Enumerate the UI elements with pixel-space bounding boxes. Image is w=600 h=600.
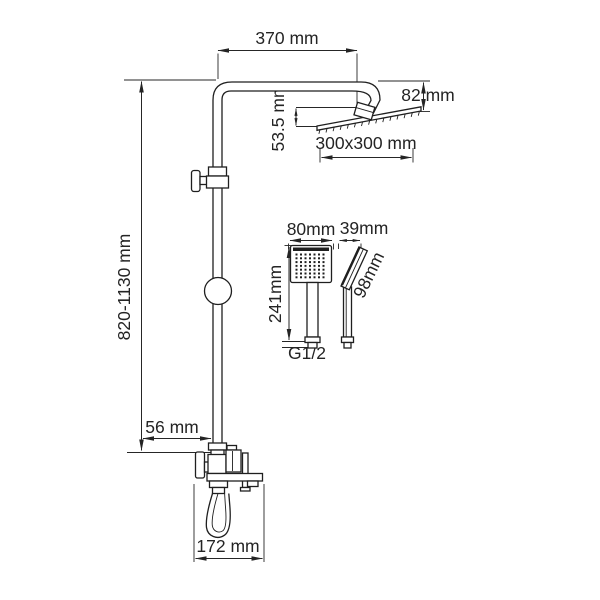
hand-shower-thread-front (308, 343, 317, 349)
dimension-head-offset-height: 82 mm (378, 81, 455, 112)
dim-label-wall-to-pipe-offset: 56 mm (145, 417, 198, 437)
dimension-wall-to-pipe-offset: 56 mm (143, 417, 211, 439)
hand-shower-handle-front (307, 283, 318, 338)
thread-label: G1/2 (288, 343, 326, 363)
holder-bracket-foot (241, 488, 251, 492)
diverter-collar (209, 167, 227, 176)
diverter-body (207, 176, 229, 188)
dimension-hand-shower-depth: 39mm (339, 218, 389, 249)
slider-holder (205, 278, 232, 305)
hose-loop-outer (206, 494, 230, 538)
riser-union-nut (209, 443, 227, 450)
technical-drawing-canvas: 820-1130 mm 370 mm 82 mm 53.5 mm 300x300… (0, 0, 600, 600)
hand-shower-front-view (291, 246, 332, 349)
dimension-column-height: 820-1130 mm (114, 80, 216, 453)
hand-shower-thread-side (344, 343, 351, 349)
hand-shower-head-band (293, 248, 329, 252)
dim-label-hand-shower-length: 241mm (265, 265, 285, 323)
shower-system-technical-drawing: 820-1130 mm 370 mm 82 mm 53.5 mm 300x300… (0, 0, 600, 600)
dim-label-head-offset-height: 82 mm (401, 85, 454, 105)
dimension-hand-shower-length: 241mm (265, 246, 292, 341)
mixer-handle (196, 452, 205, 478)
hand-shower-connector-side (342, 337, 354, 343)
hose-nut-lower (213, 488, 225, 494)
rain-shower-head (317, 102, 421, 133)
dim-label-head-assembly-height: 53.5 mm (268, 83, 288, 151)
mixer-diverter-cap (227, 446, 237, 451)
diverter-knob (192, 167, 229, 192)
dim-label-column-height: 820-1130 mm (114, 234, 134, 341)
mixer-assembly (196, 443, 263, 537)
dim-label-hand-shower-depth: 39mm (340, 218, 389, 238)
dim-label-arm-reach: 370 mm (255, 28, 318, 48)
mixer-body (208, 455, 226, 474)
hose-loop-inner (212, 494, 226, 533)
hand-shower-nozzle-grid (296, 254, 328, 280)
mixer-cartridge (226, 450, 241, 472)
slider-ring (205, 278, 232, 305)
mixer-spout (207, 474, 263, 482)
dimension-head-size: 300x300 mm (315, 133, 416, 163)
dim-label-head-size: 300x300 mm (315, 133, 416, 153)
hand-shower-connector-front (305, 337, 320, 343)
label-connection-thread: G1/2 (282, 342, 326, 364)
hand-shower-handle-side (344, 287, 352, 337)
dim-label-hand-shower-width: 80mm (287, 219, 336, 239)
spout-outlet (248, 481, 259, 487)
diverter-handle (192, 171, 201, 192)
dim-label-spout-projection: 172 mm (196, 536, 259, 556)
hose-nut-upper (210, 481, 228, 488)
